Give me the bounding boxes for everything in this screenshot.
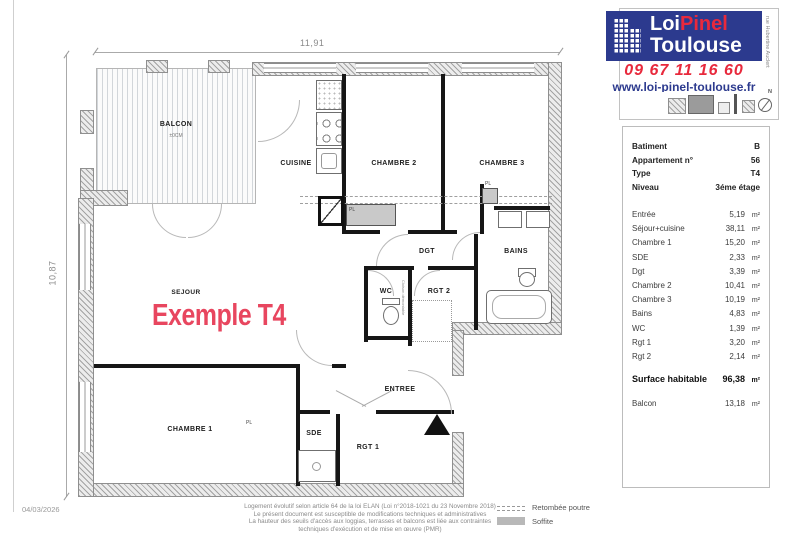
door-arc bbox=[152, 204, 186, 238]
area-row: Chambre 115,20m² bbox=[632, 236, 760, 250]
duct-shaft bbox=[318, 196, 344, 226]
street-label: rue Hubertine Auclert bbox=[764, 16, 770, 84]
window bbox=[356, 63, 428, 73]
dim-tick bbox=[558, 48, 564, 56]
area-row: Séjour+cuisine38,11m² bbox=[632, 222, 760, 236]
site-building bbox=[742, 100, 755, 113]
sink-double-2 bbox=[526, 211, 550, 228]
info-panel: BatimentB Appartement n°56 TypeT4 Niveau… bbox=[622, 126, 770, 488]
room-label-dgt: DGT bbox=[402, 248, 452, 255]
closet-label: PL bbox=[246, 420, 252, 426]
area-row: Rgt 13,20m² bbox=[632, 336, 760, 350]
window bbox=[79, 224, 91, 290]
site-wall bbox=[734, 94, 737, 114]
interior-wall bbox=[336, 414, 340, 486]
room-label-chambre2: CHAMBRE 2 bbox=[354, 160, 434, 167]
legend-label: Retombée poutre bbox=[532, 503, 590, 512]
cloison-label: Cloison démontable bbox=[401, 280, 406, 336]
dimension-height-label: 10,87 bbox=[48, 260, 58, 285]
interior-wall bbox=[408, 230, 445, 234]
exterior-wall bbox=[80, 110, 94, 134]
floor-plan: 11,91 10,87 bbox=[0, 0, 610, 529]
dimension-width-label: 11,91 bbox=[300, 38, 324, 48]
shower-drain bbox=[312, 462, 321, 471]
kitchen-fridge bbox=[316, 80, 342, 110]
interior-wall bbox=[445, 230, 457, 234]
building-icon bbox=[629, 28, 641, 54]
toilet-bains-bowl bbox=[519, 272, 535, 287]
compass-icon bbox=[758, 98, 772, 112]
compass-north-label: N bbox=[768, 89, 772, 95]
room-label-wc: WC bbox=[372, 288, 400, 295]
bathtub-inner bbox=[492, 295, 546, 319]
legend-label: Soffite bbox=[532, 517, 553, 526]
site-building bbox=[668, 98, 686, 114]
exterior-wall bbox=[208, 60, 230, 73]
window bbox=[79, 382, 91, 452]
area-row: SDE2,33m² bbox=[632, 251, 760, 265]
area-row: Chambre 210,41m² bbox=[632, 279, 760, 293]
area-row: Rgt 22,14m² bbox=[632, 350, 760, 364]
site-building bbox=[718, 102, 730, 114]
closet-label: PL bbox=[485, 181, 491, 187]
total-row: Surface habitable96,38m² bbox=[632, 373, 760, 387]
legend-dash-swatch bbox=[497, 506, 525, 507]
logo: LoiPinel Toulouse bbox=[606, 11, 762, 61]
interior-wall bbox=[441, 74, 445, 234]
toilet-wc-bowl bbox=[383, 306, 399, 325]
room-label-entree: ENTREE bbox=[372, 386, 428, 393]
closet-label: PL bbox=[349, 207, 355, 213]
phone-number: 09 67 11 16 60 bbox=[606, 62, 762, 80]
legal-line: techniques d'exécution et de mise en œuv… bbox=[175, 526, 565, 533]
toilet-wc-tank bbox=[382, 298, 400, 305]
storage-dotted bbox=[412, 300, 452, 342]
room-label-bains: BAINS bbox=[488, 248, 544, 255]
dim-tick bbox=[64, 493, 70, 501]
room-label-sejour: SEJOUR bbox=[158, 289, 214, 296]
info-areas: Entrée5,19m² Séjour+cuisine38,11m² Chamb… bbox=[632, 208, 760, 364]
interior-wall bbox=[364, 336, 410, 340]
info-row: Niveau3éme étage bbox=[632, 181, 760, 195]
room-label-chambre1: CHAMBRE 1 bbox=[148, 426, 232, 433]
site-plan-strip: N bbox=[620, 92, 778, 119]
window bbox=[264, 63, 336, 73]
logo-text: LoiPinel Toulouse bbox=[650, 14, 742, 57]
dimension-line-top bbox=[95, 52, 560, 53]
interior-wall bbox=[494, 206, 550, 210]
interior-wall bbox=[332, 364, 346, 368]
info-row: Appartement n°56 bbox=[632, 154, 760, 168]
interior-wall bbox=[94, 364, 296, 368]
interior-wall bbox=[342, 230, 380, 234]
area-row: Bains4,83m² bbox=[632, 307, 760, 321]
room-label-cuisine: CUISINE bbox=[264, 160, 328, 167]
door-arc bbox=[188, 204, 222, 238]
soffite-block bbox=[482, 188, 498, 204]
room-label-rgt1: RGT 1 bbox=[346, 444, 390, 451]
info-row: BatimentB bbox=[632, 140, 760, 154]
exterior-wall bbox=[146, 60, 168, 73]
interior-wall bbox=[296, 410, 330, 414]
entrance-triangle bbox=[424, 414, 450, 435]
room-label-balcon: BALCON bbox=[136, 121, 216, 128]
area-row: Chambre 310,19m² bbox=[632, 293, 760, 307]
sink-double-1 bbox=[498, 211, 522, 228]
area-row: Dgt3,39m² bbox=[632, 265, 760, 279]
site-building-filled bbox=[688, 95, 714, 114]
balcony-row: Balcon13,18m² bbox=[632, 397, 760, 411]
building-icon bbox=[613, 18, 628, 54]
door-arc bbox=[258, 100, 300, 142]
kitchen-hob bbox=[316, 112, 342, 146]
exterior-wall bbox=[78, 483, 464, 497]
window bbox=[462, 63, 534, 73]
info-row: TypeT4 bbox=[632, 167, 760, 181]
door-leaf bbox=[336, 390, 366, 407]
plan-date: 04/03/2026 bbox=[22, 505, 60, 514]
info-header: BatimentB Appartement n°56 TypeT4 Niveau… bbox=[632, 140, 760, 194]
legend-dash-swatch bbox=[497, 510, 525, 511]
area-row: WC1,39m² bbox=[632, 322, 760, 336]
room-label-chambre3: CHAMBRE 3 bbox=[460, 160, 544, 167]
plan-title: Exemple T4 bbox=[152, 297, 286, 333]
room-label-sde: SDE bbox=[294, 430, 334, 437]
balcon-note: ±0CM bbox=[136, 133, 216, 139]
door-arc bbox=[452, 232, 480, 260]
exterior-wall bbox=[452, 432, 464, 488]
area-row: Entrée5,19m² bbox=[632, 208, 760, 222]
exterior-wall bbox=[452, 330, 464, 376]
logo-word-loi: Loi bbox=[650, 13, 680, 35]
logo-word-toulouse: Toulouse bbox=[650, 34, 742, 57]
legend-gray-swatch bbox=[497, 517, 525, 525]
dimension-line-left bbox=[66, 55, 67, 497]
door-arc bbox=[296, 330, 332, 366]
logo-word-pinel: Pinel bbox=[680, 13, 728, 35]
room-label-rgt2: RGT 2 bbox=[418, 288, 460, 295]
